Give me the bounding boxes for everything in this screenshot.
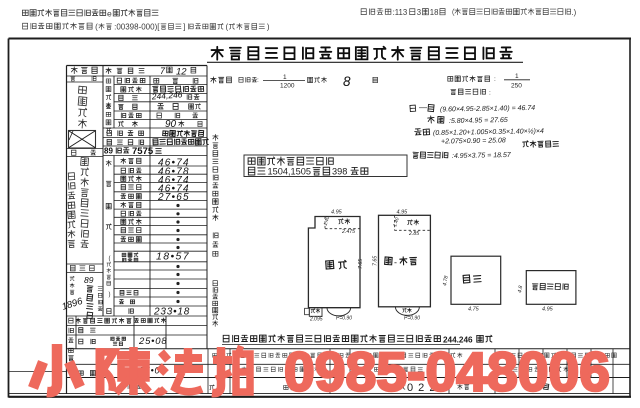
svg-text:): ) bbox=[109, 292, 111, 298]
svg-text:): ) bbox=[267, 23, 270, 32]
svg-text:-: - bbox=[394, 258, 397, 268]
svg-text:250: 250 bbox=[511, 83, 522, 90]
svg-text:3: 3 bbox=[417, 8, 421, 17]
svg-text:18: 18 bbox=[430, 8, 439, 17]
svg-text:]: ] bbox=[183, 23, 185, 32]
svg-text:4.8: 4.8 bbox=[517, 285, 524, 293]
svg-text:7575: 7575 bbox=[132, 146, 154, 157]
svg-text::: : bbox=[489, 90, 491, 97]
svg-text:.): .) bbox=[572, 8, 577, 17]
svg-text:27•65: 27•65 bbox=[157, 192, 190, 203]
svg-text:89: 89 bbox=[104, 147, 113, 156]
svg-text:(: ( bbox=[226, 23, 229, 32]
svg-text:90: 90 bbox=[165, 119, 177, 130]
svg-text::5.80×4.95 = 27.65: :5.80×4.95 = 27.65 bbox=[449, 117, 508, 125]
svg-text:e: e bbox=[107, 9, 112, 19]
svg-text::: : bbox=[494, 76, 496, 83]
svg-text:12: 12 bbox=[176, 67, 187, 78]
svg-text:7.65: 7.65 bbox=[373, 256, 379, 266]
svg-text:4.95: 4.95 bbox=[331, 210, 343, 216]
svg-text:—: — bbox=[419, 103, 427, 112]
svg-text:(: ( bbox=[109, 256, 111, 262]
svg-text:2.85: 2.85 bbox=[408, 231, 419, 237]
svg-text:P=0.90: P=0.90 bbox=[336, 316, 352, 322]
svg-text:4.95: 4.95 bbox=[542, 307, 554, 313]
svg-text:1: 1 bbox=[283, 74, 287, 81]
svg-text:1504,1505: 1504,1505 bbox=[268, 167, 311, 177]
svg-text:8: 8 bbox=[343, 74, 351, 89]
svg-text::00398-000)[: :00398-000)[ bbox=[114, 23, 160, 32]
svg-text:25•08: 25•08 bbox=[138, 336, 167, 347]
svg-text:(: ( bbox=[95, 23, 98, 32]
svg-text:1200: 1200 bbox=[280, 83, 295, 90]
svg-text:233•18: 233•18 bbox=[153, 307, 190, 318]
svg-text::113: :113 bbox=[393, 8, 408, 17]
svg-text:1: 1 bbox=[515, 73, 519, 80]
svg-text:0985-048006: 0985-048006 bbox=[284, 341, 610, 403]
svg-text:18•57: 18•57 bbox=[156, 251, 190, 263]
svg-text:4.95: 4.95 bbox=[397, 210, 409, 216]
svg-text:2.095: 2.095 bbox=[309, 317, 323, 323]
svg-text:398: 398 bbox=[332, 167, 347, 177]
svg-text::: : bbox=[257, 77, 259, 84]
svg-text:（: （ bbox=[447, 8, 455, 17]
svg-text:4.75: 4.75 bbox=[468, 307, 480, 313]
svg-text:89: 89 bbox=[84, 275, 94, 285]
svg-text::4.95×3.75 = 18.57: :4.95×3.75 = 18.57 bbox=[452, 152, 512, 160]
svg-text:2.475: 2.475 bbox=[341, 229, 355, 235]
svg-text:+2.075×0.90 = 25.08: +2.075×0.90 = 25.08 bbox=[441, 137, 506, 145]
svg-text:P=0.90: P=0.90 bbox=[404, 316, 420, 322]
svg-text:7.65: 7.65 bbox=[358, 259, 364, 269]
